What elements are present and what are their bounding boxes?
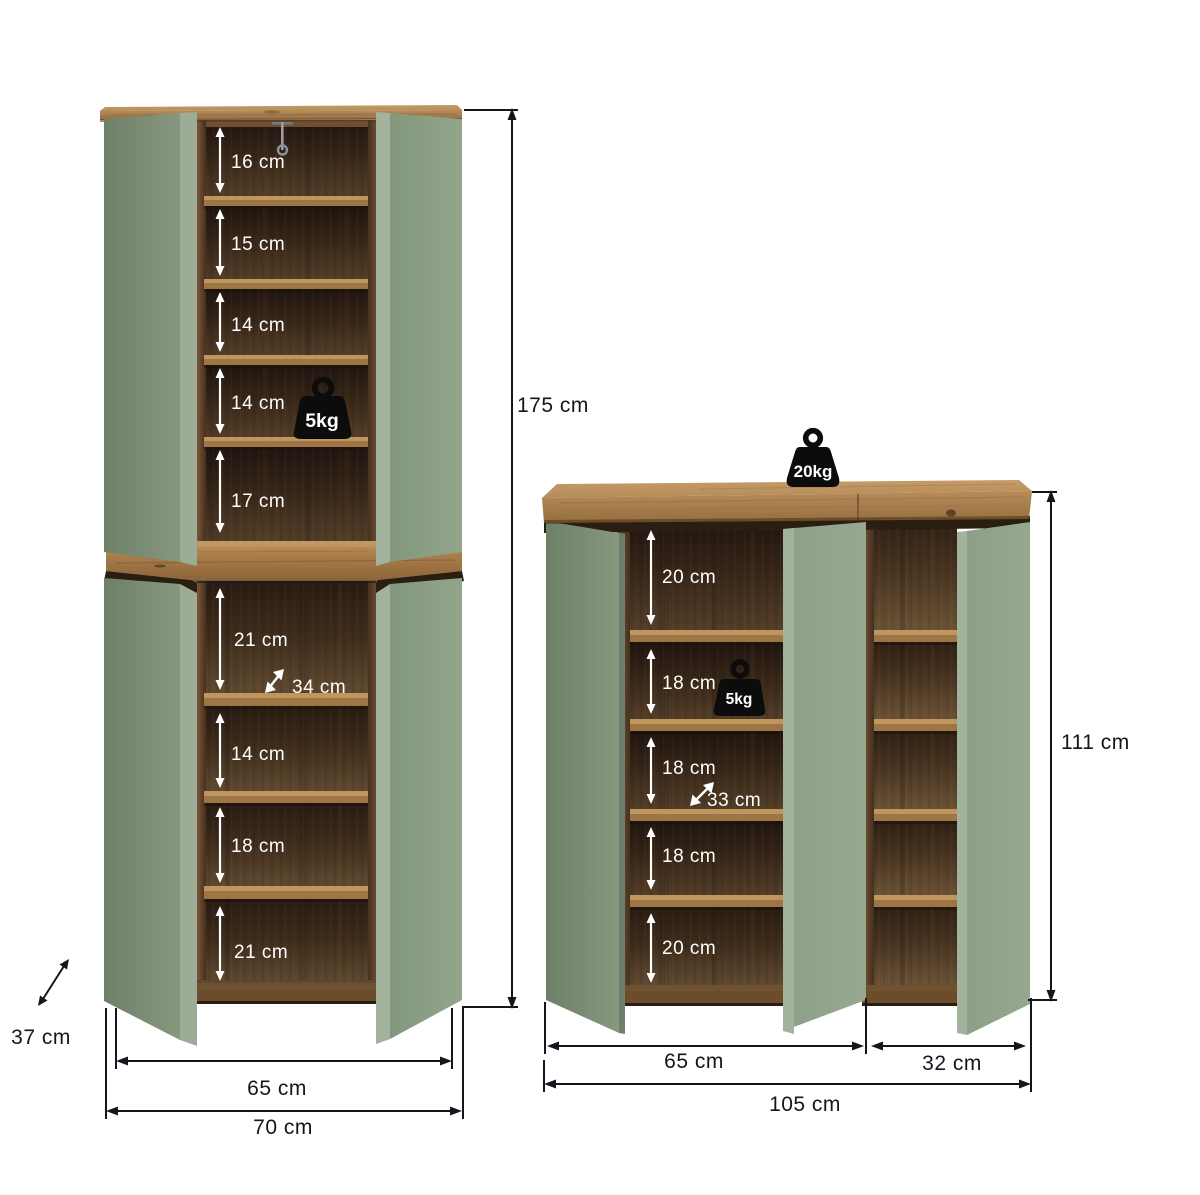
svg-text:37 cm: 37 cm: [11, 1026, 71, 1049]
svg-text:14 cm: 14 cm: [231, 315, 285, 336]
svg-text:14 cm: 14 cm: [231, 393, 285, 414]
svg-text:5kg: 5kg: [726, 691, 753, 708]
svg-text:65 cm: 65 cm: [247, 1077, 307, 1100]
svg-text:18 cm: 18 cm: [662, 673, 716, 694]
svg-text:18 cm: 18 cm: [662, 758, 716, 779]
svg-text:20kg: 20kg: [794, 462, 833, 481]
svg-text:21 cm: 21 cm: [234, 630, 288, 651]
svg-text:105 cm: 105 cm: [769, 1093, 841, 1116]
svg-text:32 cm: 32 cm: [922, 1052, 982, 1075]
svg-text:65 cm: 65 cm: [664, 1050, 724, 1073]
svg-text:17 cm: 17 cm: [231, 491, 285, 512]
svg-text:5kg: 5kg: [305, 410, 339, 432]
svg-text:33 cm: 33 cm: [707, 790, 761, 811]
svg-text:20 cm: 20 cm: [662, 567, 716, 588]
svg-text:111 cm: 111 cm: [1061, 731, 1130, 754]
svg-text:175 cm: 175 cm: [517, 394, 589, 417]
svg-text:21 cm: 21 cm: [234, 942, 288, 963]
svg-text:18 cm: 18 cm: [662, 846, 716, 867]
svg-text:15 cm: 15 cm: [231, 234, 285, 255]
svg-text:14 cm: 14 cm: [231, 744, 285, 765]
svg-text:16 cm: 16 cm: [231, 152, 285, 173]
svg-text:70 cm: 70 cm: [253, 1116, 313, 1139]
svg-text:18 cm: 18 cm: [231, 836, 285, 857]
svg-text:34 cm: 34 cm: [292, 677, 346, 698]
svg-text:20 cm: 20 cm: [662, 938, 716, 959]
